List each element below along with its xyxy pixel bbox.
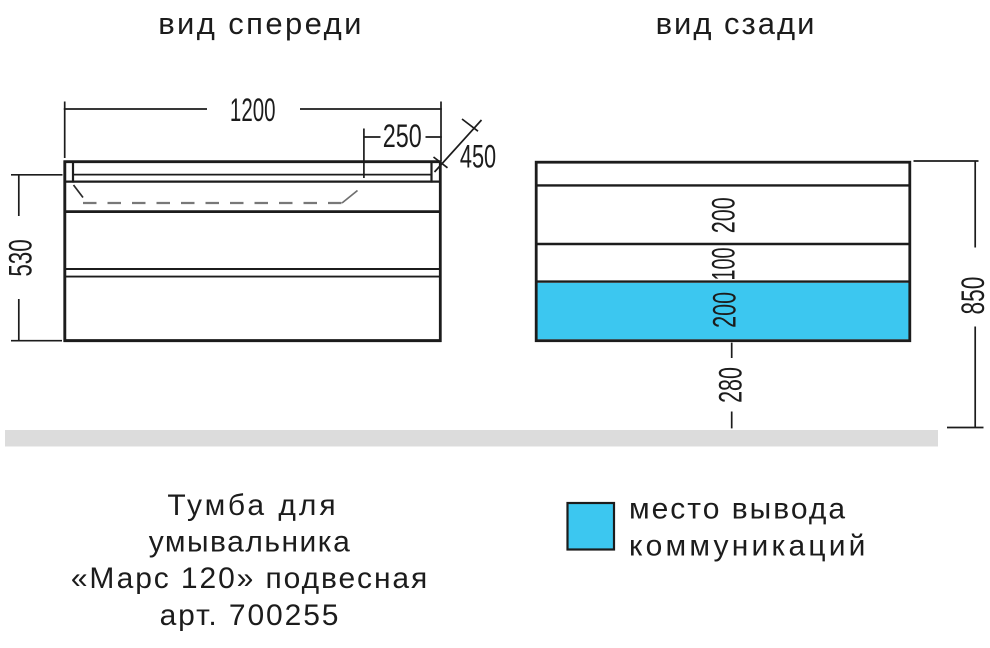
svg-text:вид сзади: вид сзади [656,6,817,41]
svg-text:«Марс 120» подвесная: «Марс 120» подвесная [71,562,429,595]
svg-text:850: 850 [955,277,990,315]
svg-text:450: 450 [460,138,496,174]
svg-text:1200: 1200 [230,92,276,128]
svg-text:530: 530 [3,239,39,276]
svg-text:100: 100 [706,247,742,280]
svg-text:арт. 700255: арт. 700255 [160,599,341,632]
svg-text:Тумба для: Тумба для [167,489,338,522]
svg-text:умывальника: умывальника [149,526,352,559]
svg-text:вид спереди: вид спереди [158,6,364,41]
svg-text:280: 280 [712,367,748,403]
svg-text:200: 200 [706,292,742,328]
svg-text:место вывода: место вывода [629,493,847,526]
svg-text:коммуникаций: коммуникаций [629,530,869,563]
svg-text:200: 200 [705,197,741,233]
svg-text:250: 250 [383,118,422,153]
